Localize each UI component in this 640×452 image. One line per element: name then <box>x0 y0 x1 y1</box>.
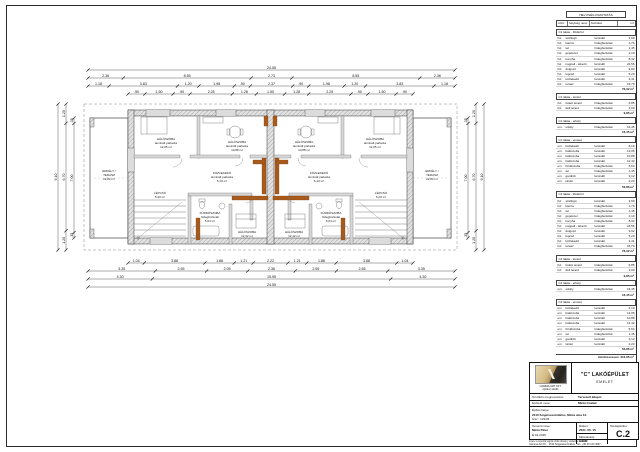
schedule-cell: fsz. <box>558 57 566 61</box>
schedule-cell: szélfogó <box>566 199 595 203</box>
svg-text:5,20 m²: 5,20 m² <box>376 195 386 199</box>
dimension-value: 2.36 <box>434 74 441 78</box>
dim-bottom-row3: 4.3015.954.30 <box>86 275 456 281</box>
schedule-cell: 12,42 <box>620 159 635 163</box>
schedule-cell: hidegburkolat <box>595 82 620 86</box>
dimension-value: .90 <box>298 82 303 86</box>
project-title: "C" LAKÓÉPÜLET <box>581 372 629 378</box>
dimension-value: 1.28 <box>293 90 300 94</box>
schedule-cell: 16,45 <box>620 125 635 129</box>
schedule-cell: közlekedő <box>566 144 595 148</box>
schedule-cell: közlekedő <box>566 239 595 243</box>
schedule-cell: 5,64 <box>620 164 635 168</box>
schedule-cell: em. <box>558 327 566 331</box>
dimension-value: 1.21 <box>240 259 247 263</box>
schedule-section-header: C2 lakás - terasz <box>556 255 636 262</box>
schedule-cell: hidegburkolat <box>595 204 620 208</box>
schedule-cell: hidegburkolat <box>595 214 620 218</box>
schedule-cell: tároló <box>566 179 595 183</box>
svg-text:5,20 m²: 5,20 m² <box>155 195 165 199</box>
schedule-cell: fsz. <box>558 46 566 50</box>
schedule-cell: hidegburkolat <box>595 327 620 331</box>
schedule-cell: em. <box>558 321 566 325</box>
schedule-cell: laminált <box>595 316 620 320</box>
schedule-cell: fsz. <box>558 62 566 66</box>
schedule-cell: 1,45 <box>620 209 635 213</box>
dim-top-row2: 2.368.552.738.552.36 <box>86 74 456 80</box>
schedule-cell: 15,70 <box>620 244 635 248</box>
schedule-cell: 6,10 <box>620 306 635 310</box>
dimension-value: 1.20 <box>472 237 476 244</box>
dimension-value: .35 <box>464 233 468 238</box>
dimension-value: 1.20 <box>62 110 66 117</box>
schedule-cell: em. <box>558 287 566 291</box>
schedule-cell: 12,05 <box>620 311 635 315</box>
schedule-cell: fsz. <box>558 101 566 105</box>
schedule-cell: dolgozó <box>566 67 595 71</box>
dimension-value: 15.95 <box>267 275 276 279</box>
dimension-value: 2.22 <box>267 259 274 263</box>
client-label: Építtető neve: <box>532 401 578 405</box>
schedule-cell: 9,92 <box>620 229 635 233</box>
schedule-cell: hidegburkolat <box>595 209 620 213</box>
dim-right-row3: .357.00.35 <box>464 116 470 239</box>
schedule-cell: laminált <box>595 337 620 341</box>
room-label-bath: FÜRDŐSZOBA hidegburkolat 5,64 m² <box>321 210 342 223</box>
dimension-value: 1.18 <box>95 82 102 86</box>
schedule-cell: em. <box>558 179 566 183</box>
schedule-cell: laminált <box>595 72 620 76</box>
schedule-cell: 9,92 <box>620 67 635 71</box>
schedule-cell: 8,32 <box>620 57 635 61</box>
room-label-bedroom: HÁLÓSZOBA laminált parketta 12,05 m² <box>155 136 177 149</box>
dimension-value: 3.83 <box>396 82 403 86</box>
dimension-value: 1.88 <box>216 259 223 263</box>
schedule-cell: hálószoba <box>566 154 595 158</box>
schedule-total-label: mindösszesen: <box>598 355 620 359</box>
svg-text:12,42 m²: 12,42 m² <box>241 234 253 238</box>
schedule-cell: gardrób <box>566 337 595 341</box>
dimension-value: .90 <box>179 90 184 94</box>
schedule-cell: fsz. <box>558 36 566 40</box>
schedule-cell: fsz. <box>558 268 566 272</box>
schedule-cell: hálószoba <box>566 311 595 315</box>
svg-text:12,05 m²: 12,05 m² <box>369 145 381 149</box>
schedule-cell: em. <box>558 149 566 153</box>
schedule-cell: wc <box>566 209 595 213</box>
schedule-cell: 6,85 <box>620 263 635 267</box>
project-subtitle: EMELET <box>596 380 613 384</box>
dim-bottom-overall: 24.55 <box>86 283 456 289</box>
company-logo: GAMMA-ART KFT. építész stúdió <box>530 363 572 393</box>
bed-icon <box>141 117 167 134</box>
schedule-cell: 16,45 <box>620 287 635 291</box>
schedule-cell: hidegburkolat <box>595 268 620 272</box>
svg-text:6,10 m²: 6,10 m² <box>314 179 324 183</box>
schedule-cell: laminált <box>595 321 620 325</box>
dimension-value: 1.04 <box>401 259 408 263</box>
room-schedule-table: HELYISÉG KIMUTATÁS szint helyiség neve b… <box>556 11 636 359</box>
schedule-cell: laminált <box>595 144 620 148</box>
schedule-cell: laminált <box>595 199 620 203</box>
dimension-value: 2.73 <box>268 74 275 78</box>
schedule-section-subtotal: 53,86 m² <box>556 347 636 351</box>
dimension-value: 6.70 <box>62 174 66 181</box>
schedule-cell: fsz. <box>558 41 566 45</box>
svg-text:6,10 m²: 6,10 m² <box>217 179 227 183</box>
schedule-cell: 3,12 <box>620 174 635 178</box>
schedule-cell: hidegburkolat <box>595 106 620 110</box>
dimension-value: 3.35 <box>418 267 425 271</box>
schedule-cell: gépészet <box>566 214 595 218</box>
stairs-left-icon <box>134 200 186 239</box>
schedule-cell: 6,10 <box>620 144 635 148</box>
schedule-cell: 12,42 <box>620 321 635 325</box>
schedule-cell: fedett terasz <box>566 263 595 267</box>
dim-bottom-row2: 3.352.552.052.362.052.553.35 <box>86 267 456 273</box>
schedule-cell: konyha <box>566 219 595 223</box>
schedule-cell: laminált <box>595 149 620 153</box>
schedule-section-header: C2 lakás - földszint <box>556 191 636 198</box>
schedule-cell: hidegburkolat <box>595 101 620 105</box>
date-cell: Dátum: 2021. 06. 15. <box>577 423 607 434</box>
schedule-cell: laminált <box>595 234 620 238</box>
dimension-value: 7.00 <box>464 175 468 182</box>
dimension-value: 2.05 <box>224 267 231 271</box>
dimension-value: 24.55 <box>267 283 276 287</box>
schedule-cell: konyha <box>566 57 595 61</box>
dimension-value: 1.50 <box>378 90 385 94</box>
toilet-icon <box>336 199 342 209</box>
schedule-section-subtotal: 76,32 m² <box>556 249 636 253</box>
schedule-section-header: C1 lakás - terasz <box>556 93 636 100</box>
schedule-cell: szélfogó <box>566 36 595 40</box>
dimension-value: 1.20 <box>472 110 476 117</box>
schedule-cell: fsz. <box>558 234 566 238</box>
schedule-cell: hidegburkolat <box>595 287 620 291</box>
schedule-cell: közlekedő <box>566 306 595 310</box>
schedule-cell: hálószoba <box>566 316 595 320</box>
schedule-cell: fsz. <box>558 209 566 213</box>
dimension-value: .90 <box>402 90 407 94</box>
schedule-cell: fsz. <box>558 67 566 71</box>
schedule-cell: 3,12 <box>620 337 635 341</box>
schedule-cell: terasz <box>566 82 595 86</box>
dimension-value: 24.55 <box>267 66 276 70</box>
schedule-cell: 1,76 <box>620 41 635 45</box>
dimension-value: 9.10 <box>480 174 484 181</box>
schedule-title: HELYISÉG KIMUTATÁS <box>566 11 626 18</box>
schedule-cell: tároló <box>566 342 595 346</box>
schedule-cell: fsz. <box>558 106 566 110</box>
dimension-value: 7.00 <box>70 175 74 182</box>
schedule-section-subtotal: 16,45 m² <box>556 292 636 296</box>
schedule-cell: fsz. <box>558 239 566 243</box>
date-value: 2021. 06. 15. <box>579 428 605 432</box>
schedule-cell: 3,90 <box>620 199 635 203</box>
room-label-terrace: ERKÉLY / TERASZ 22,84 m² <box>102 168 115 181</box>
schedule-cell: em. <box>558 159 566 163</box>
schedule-cell: fsz. <box>558 77 566 81</box>
schedule-cell: fsz. <box>558 263 566 267</box>
stairs-right-icon <box>355 200 407 239</box>
sheet-number-value: C.2 <box>610 429 636 439</box>
svg-text:5,64 m²: 5,64 m² <box>205 219 215 223</box>
dimension-value: 2.55 <box>359 267 366 271</box>
svg-text:5,64 m²: 5,64 m² <box>326 219 336 223</box>
schedule-col-room: helyiség neve <box>568 21 590 26</box>
schedule-cell: hidegburkolat <box>595 332 620 336</box>
schedule-cell: em. <box>558 144 566 148</box>
schedule-body: C1 lakás - földszintfsz.szélfogólaminált… <box>556 29 636 351</box>
schedule-cell: déli terasz <box>566 268 595 272</box>
schedule-cell: erkély <box>566 125 595 129</box>
schedule-cell: gépészet <box>566 51 595 55</box>
dimension-value: 2.37 <box>268 82 275 86</box>
schedule-cell: em. <box>558 342 566 346</box>
dimension-value: .35 <box>464 118 468 123</box>
schedule-cell: em. <box>558 316 566 320</box>
schedule-cell: 5,20 <box>620 234 635 238</box>
schedule-cell: hidegburkolat <box>595 244 620 248</box>
dimension-value: 1.20 <box>351 82 358 86</box>
dimension-value: 1.04 <box>133 259 140 263</box>
dimension-value: 1.20 <box>62 237 66 244</box>
dimension-value: 2.25 <box>208 90 215 94</box>
dimension-value: .90 <box>357 90 362 94</box>
schedule-cell: hidegburkolat <box>595 125 620 129</box>
schedule-cell: laminált <box>595 229 620 233</box>
room-label-bedroom: HÁLÓSZOBA 12,42 m² <box>285 229 303 238</box>
schedule-cell: fürdőszoba <box>566 327 595 331</box>
schedule-cell: fedett terasz <box>566 101 595 105</box>
dimension-value: 1.88 <box>318 259 325 263</box>
schedule-cell: 1,76 <box>620 204 635 208</box>
dim-top-row4: .901.50.902.251.281.501.282.25.901.50.90 <box>126 90 414 96</box>
dim-left-row2: 1.206.701.20 <box>62 102 68 251</box>
schedule-cell: 15,70 <box>620 82 635 86</box>
dimension-value: 2.55 <box>177 267 184 271</box>
schedule-header: szint helyiség neve burkolat m² <box>556 20 636 27</box>
dim-top-row3: 1.183.831.201.98.902.37.901.981.203.831.… <box>86 82 456 88</box>
schedule-cell: gardrób <box>566 174 595 178</box>
schedule-cell: fsz. <box>558 82 566 86</box>
schedule-cell: nappali - étkező <box>566 224 595 228</box>
schedule-col-area: m² <box>618 21 635 26</box>
schedule-cell: laminált <box>595 159 620 163</box>
room-label-corridor: KÖZLEKEDŐ laminált parketta 6,10 m² <box>308 170 330 183</box>
schedule-section-subtotal: 9,85 m² <box>556 273 636 277</box>
schedule-cell: hálószoba <box>566 321 595 325</box>
schedule-cell: hálószoba <box>566 159 595 163</box>
schedule-cell: 12,05 <box>620 149 635 153</box>
schedule-cell: hidegburkolat <box>595 41 620 45</box>
schedule-cell: lépcső <box>566 72 595 76</box>
schedule-section-subtotal: 53,86 m² <box>556 184 636 188</box>
schedule-cell: laminált <box>595 77 620 81</box>
dimension-value: .35 <box>70 233 74 238</box>
room-label-bedroom: HÁLÓSZOBA laminált parketta 10,88 m² <box>226 139 248 152</box>
schedule-cell: 10,88 <box>620 154 635 158</box>
dimension-value: 1.20 <box>185 82 192 86</box>
schedule-cell: laminált <box>595 36 620 40</box>
schedule-total-value: 312,96 m² <box>620 355 634 359</box>
schedule-cell: hidegburkolat <box>595 263 620 267</box>
schedule-cell: fsz. <box>558 72 566 76</box>
dimension-value: 8.55 <box>184 74 191 78</box>
schedule-cell: terasz <box>566 244 595 248</box>
schedule-cell: fsz. <box>558 204 566 208</box>
schedule-cell: 5,20 <box>620 72 635 76</box>
schedule-cell: hidegburkolat <box>595 57 620 61</box>
schedule-section-header: C1 lakás - erkély <box>556 117 636 124</box>
dim-top-overall: 24.55 <box>86 66 456 72</box>
room-label-stairs: LÉPCSŐ 5,20 m² <box>375 190 388 199</box>
schedule-cell: kamra <box>566 41 595 45</box>
schedule-cell: fsz. <box>558 199 566 203</box>
schedule-cell: em. <box>558 125 566 129</box>
schedule-cell: laminált <box>595 224 620 228</box>
schedule-cell: 1,45 <box>620 332 635 336</box>
schedule-cell: nappali - étkező <box>566 62 595 66</box>
schedule-cell: dolgozó <box>566 229 595 233</box>
schedule-cell: 2,10 <box>620 214 635 218</box>
title-block-footer: A terv a szerzői jogról szóló törvény vé… <box>529 440 637 447</box>
phase-value: Tervezett állapot <box>578 395 636 399</box>
schedule-cell: em. <box>558 306 566 310</box>
dimension-value: .35 <box>70 118 74 123</box>
room-label-terrace: ERKÉLY / TERASZ 22,84 m² <box>425 168 438 181</box>
schedule-cell: 6,85 <box>620 101 635 105</box>
schedule-section-header: C1 lakás - emelet <box>556 136 636 143</box>
schedule-cell: 1,45 <box>620 46 635 50</box>
schedule-cell: laminált <box>595 239 620 243</box>
designer-license: É 01-2345 <box>532 433 574 437</box>
room-label-bedroom: HÁLÓSZOBA laminált parketta 10,88 m² <box>293 139 315 152</box>
svg-text:12,05 m²: 12,05 m² <box>160 145 172 149</box>
schedule-cell: 24,56 <box>620 62 635 66</box>
site-info: Építés helye: 2310 Szigetszentmiklós, Mi… <box>530 407 638 423</box>
schedule-cell: laminált <box>595 342 620 346</box>
schedule-cell: kamra <box>566 204 595 208</box>
schedule-cell: hidegburkolat <box>595 46 620 50</box>
schedule-cell: em. <box>558 174 566 178</box>
schedule-cell: hidegburkolat <box>595 219 620 223</box>
schedule-cell: laminált <box>595 62 620 66</box>
schedule-cell: wc <box>566 332 595 336</box>
schedule-cell: hidegburkolat <box>595 169 620 173</box>
room-label-corridor: KÖZLEKEDŐ laminált parketta 6,10 m² <box>211 170 233 183</box>
schedule-cell: fsz. <box>558 51 566 55</box>
schedule-cell: wc <box>566 46 595 50</box>
schedule-cell: erkély <box>566 287 595 291</box>
table-icon <box>227 126 243 138</box>
schedule-grand-total: mindösszesen: 312,96 m² <box>556 354 636 359</box>
schedule-col-level: szint <box>557 21 568 26</box>
schedule-cell: em. <box>558 164 566 168</box>
schedule-cell: laminált <box>595 311 620 315</box>
dimension-value: 3.88 <box>171 259 178 263</box>
schedule-cell: laminált <box>595 154 620 158</box>
schedule-cell: fürdőszoba <box>566 164 595 168</box>
svg-text:10,88 m²: 10,88 m² <box>298 148 310 152</box>
schedule-cell: em. <box>558 169 566 173</box>
schedule-cell: 3,00 <box>620 106 635 110</box>
dim-right-overall: 9.10 <box>480 102 486 251</box>
dim-left-row3: .357.00.35 <box>70 116 76 239</box>
dimension-value: 4.30 <box>117 275 124 279</box>
dim-right-row2: 1.206.701.20 <box>472 102 478 251</box>
schedule-cell: laminált <box>595 306 620 310</box>
schedule-cell: 1,45 <box>620 169 635 173</box>
dimension-value: .90 <box>240 82 245 86</box>
dimension-value: 9.10 <box>54 174 58 181</box>
dimension-value: 6.70 <box>472 174 476 181</box>
schedule-cell: 2,10 <box>620 51 635 55</box>
schedule-section-header: C2 lakás - erkély <box>556 280 636 287</box>
dimension-value: 1.98 <box>323 82 330 86</box>
schedule-section-subtotal: 16,45 m² <box>556 130 636 134</box>
schedule-cell: lépcső <box>566 234 595 238</box>
schedule-cell: 2,20 <box>620 342 635 346</box>
schedule-cell: fsz. <box>558 224 566 228</box>
schedule-cell: hidegburkolat <box>595 51 620 55</box>
toilet-icon <box>199 199 205 209</box>
phase-label: Tervfázis megnevezése: <box>532 395 578 399</box>
schedule-section-header: C1 lakás - földszint <box>556 29 636 36</box>
dimension-value: 1.18 <box>441 82 448 86</box>
schedule-cell: laminált <box>595 67 620 71</box>
schedule-section-subtotal: 9,85 m² <box>556 111 636 115</box>
schedule-section-header: C2 lakás - emelet <box>556 299 636 306</box>
schedule-cell: 3,00 <box>620 268 635 272</box>
room-label-stairs: LÉPCSŐ 5,20 m² <box>154 190 167 199</box>
schedule-cell: 8,32 <box>620 219 635 223</box>
schedule-cell: hálószoba <box>566 149 595 153</box>
dimension-value: 1.50 <box>156 90 163 94</box>
table-icon <box>298 126 314 138</box>
schedule-section-subtotal: 76,32 m² <box>556 87 636 91</box>
contact-note: Gamma-Art Kft. · 2310 Szigetszentmiklós … <box>529 443 637 446</box>
logo-caption-2: építész stúdió <box>540 388 562 391</box>
schedule-cell: em. <box>558 337 566 341</box>
dimension-value: 3.83 <box>140 82 147 86</box>
schedule-cell: fsz. <box>558 214 566 218</box>
dim-left-overall: 9.10 <box>54 102 60 251</box>
schedule-cell: 3,41 <box>620 77 635 81</box>
room-label-bedroom: HÁLÓSZOBA laminált parketta 12,05 m² <box>364 136 386 149</box>
logo-photo <box>535 365 567 385</box>
svg-text:12,42 m²: 12,42 m² <box>288 234 300 238</box>
svg-text:22,84 m²: 22,84 m² <box>103 177 115 181</box>
dimension-value: 3.88 <box>363 259 370 263</box>
dimension-value: 2.36 <box>268 267 275 271</box>
svg-text:22,84 m²: 22,84 m² <box>426 177 438 181</box>
dimension-value: .90 <box>134 90 139 94</box>
schedule-cell: déli terasz <box>566 106 595 110</box>
client-value: Minta Család <box>578 401 636 405</box>
schedule-cell: hidegburkolat <box>595 164 620 168</box>
room-label-bath: FÜRDŐSZOBA hidegburkolat 5,64 m² <box>200 210 221 223</box>
sheet-number-label: Tervlapszám: <box>610 424 636 428</box>
schedule-cell: 5,64 <box>620 327 635 331</box>
dimension-value: 2.25 <box>326 90 333 94</box>
dimension-value: 2.05 <box>312 267 319 271</box>
dimension-value: 1.50 <box>267 90 274 94</box>
dimension-value: 4.30 <box>419 275 426 279</box>
schedule-cell: 2,20 <box>620 179 635 183</box>
dim-bottom-row1: 1.043.881.881.212.221.211.883.881.04 <box>126 259 414 265</box>
